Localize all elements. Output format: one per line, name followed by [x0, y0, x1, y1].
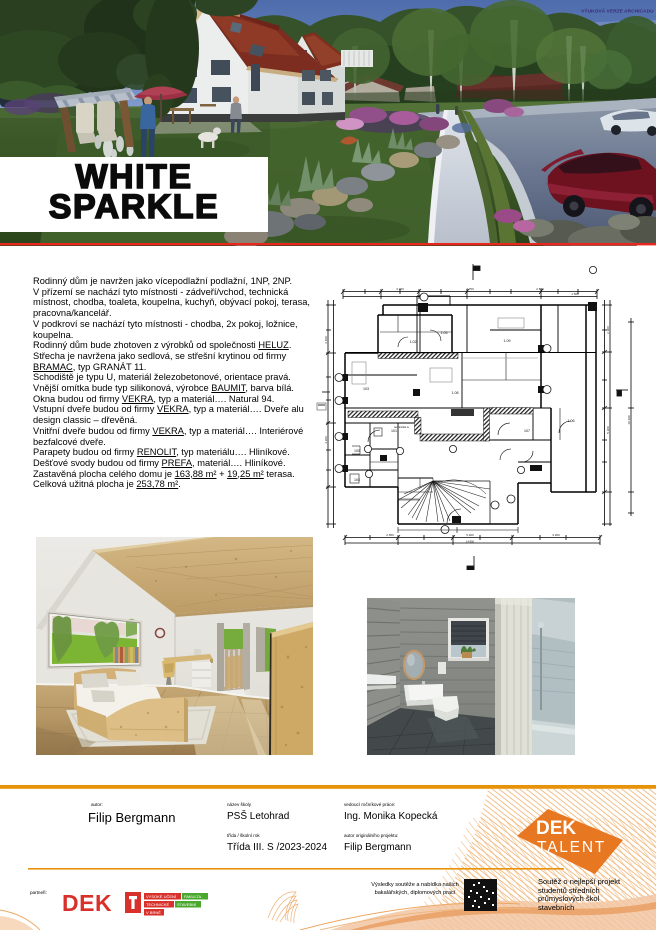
svg-text:5 400: 5 400 [466, 533, 474, 537]
svg-text:4 200: 4 200 [324, 436, 328, 444]
svg-text:TECHNICKÉ: TECHNICKÉ [146, 902, 169, 907]
svg-text:5 200: 5 200 [606, 426, 610, 434]
svg-text:105: 105 [354, 449, 360, 453]
svg-text:3 400: 3 400 [324, 336, 328, 344]
svg-text:2 650: 2 650 [386, 533, 394, 537]
svg-text:107: 107 [524, 429, 530, 433]
svg-text:3 200: 3 200 [552, 533, 560, 537]
svg-text:1.05: 1.05 [441, 331, 448, 335]
svg-text:103: 103 [363, 387, 369, 391]
svg-text:1 500: 1 500 [571, 292, 579, 296]
svg-text:FAKULTA: FAKULTA [184, 894, 202, 899]
svg-text:STAVEBNÍ: STAVEBNÍ [177, 902, 197, 907]
svg-text:2 900: 2 900 [606, 326, 610, 334]
svg-text:1.02: 1.02 [410, 340, 417, 344]
svg-text:1.08: 1.08 [452, 391, 459, 395]
svg-text:3 200: 3 200 [396, 287, 404, 291]
svg-text:technická m.: technická m. [394, 425, 410, 429]
svg-text:10 300: 10 300 [627, 415, 631, 425]
svg-text:DEK: DEK [536, 818, 576, 839]
svg-text:VYSOKÉ UČENÍ: VYSOKÉ UČENÍ [146, 894, 177, 899]
svg-text:1.06: 1.06 [568, 419, 575, 423]
svg-text:DEK: DEK [62, 890, 112, 916]
svg-text:14 850: 14 850 [466, 540, 474, 544]
svg-text:1.09: 1.09 [504, 339, 511, 343]
svg-text:104: 104 [354, 478, 360, 482]
svg-text:V BRNĚ: V BRNĚ [146, 910, 161, 915]
svg-text:2 880: 2 880 [536, 287, 544, 291]
svg-text:VÝUKOVÁ VERZE ARCHICADU: VÝUKOVÁ VERZE ARCHICADU [581, 8, 654, 15]
svg-text:TALENT: TALENT [537, 839, 606, 856]
svg-text:4 750: 4 750 [466, 287, 474, 291]
svg-text:101: 101 [391, 429, 397, 433]
